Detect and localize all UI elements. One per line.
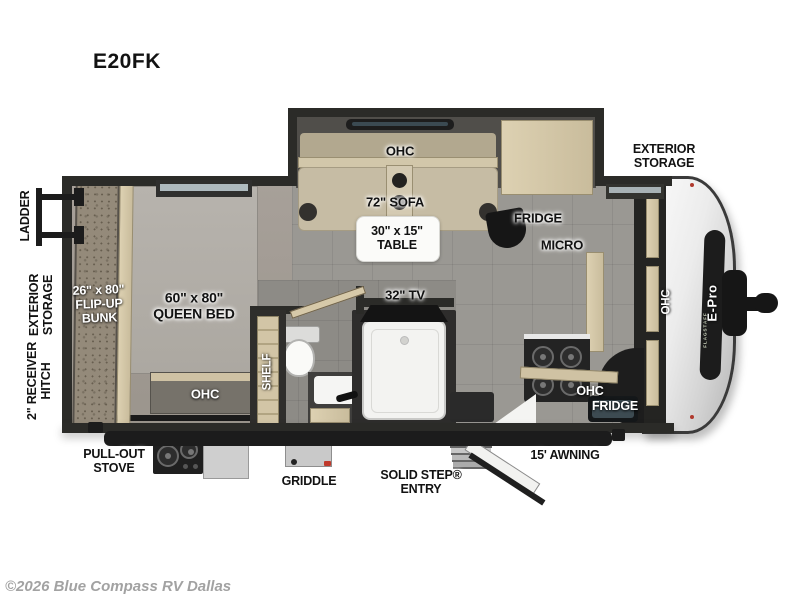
pullout-stove-tray <box>203 441 249 479</box>
stove-burner <box>532 346 554 368</box>
sofa-armrest <box>299 203 317 221</box>
tv <box>360 305 448 322</box>
hitch-coupler <box>754 293 778 313</box>
sofa-cupholder <box>392 173 407 188</box>
slideout-window-glass <box>352 122 448 126</box>
griddle-label: GRIDDLE <box>282 474 337 488</box>
cap-marker-dot <box>690 415 694 419</box>
micro-label: MICRO <box>541 239 583 254</box>
slideout-cabinet <box>501 120 593 195</box>
vanity-drawer <box>310 408 350 423</box>
bunk-label: 26" x 80" FLIP-UP BUNK <box>72 282 125 326</box>
stove-burner <box>560 346 582 368</box>
copyright-text: ©2026 Blue Compass RV Dallas <box>5 578 231 595</box>
awning-rail <box>104 431 612 446</box>
tv-label: 32" TV <box>385 289 425 304</box>
pull-out-stove-label: PULL-OUT STOVE <box>83 447 145 475</box>
bedroom-window-glass <box>160 184 248 191</box>
pullout-stove-knob <box>183 464 188 469</box>
slideout-wall-top <box>288 108 604 117</box>
shelf-label: SHELF <box>262 354 275 391</box>
slideout-window <box>346 119 454 130</box>
pullout-stove-burner <box>157 445 179 467</box>
kitchen-fridge-label: FRIDGE <box>592 399 638 413</box>
epro-logo-text: E-Pro <box>706 284 721 321</box>
solid-step-label: SOLID STEP® ENTRY <box>380 468 461 496</box>
griddle-knob <box>291 459 297 465</box>
receiver-hitch-label: 2" RECEIVER HITCH <box>25 342 53 420</box>
awning-left-nub <box>88 422 103 433</box>
bed-ohc-label: OHC <box>191 388 219 403</box>
bedroom-window <box>156 180 252 197</box>
exterior-storage-left-label: EXTERIOR STORAGE <box>27 274 55 336</box>
shower-tub <box>362 320 446 420</box>
fridge-label: FRIDGE <box>514 212 562 227</box>
epro-logo-subtext: FLAGSTAFF <box>702 312 707 347</box>
floorplan-page: E20FK OHC E-Pro FLAGSTAFF <box>0 0 800 600</box>
front-window-glass <box>609 187 661 193</box>
cap-storage-plank <box>646 340 659 406</box>
queen-bed-label: 60" x 80" QUEEN BED <box>153 290 234 321</box>
sofa-label: 72" SOFA <box>366 196 424 211</box>
slide-ohc-label: OHC <box>386 145 414 160</box>
front-window <box>606 184 664 199</box>
pullout-stove-knob <box>193 464 198 469</box>
table-label: 30" x 15" TABLE <box>371 224 423 252</box>
ladder-label: LADDER <box>18 191 32 242</box>
bed-ohc-wood-edge <box>151 373 257 381</box>
griddle-valve <box>324 461 331 466</box>
page-title: E20FK <box>93 50 161 74</box>
cap-storage-plank <box>646 266 659 332</box>
ladder-hook <box>74 188 84 206</box>
wall-left <box>62 176 72 433</box>
slideout-wall-left <box>288 108 297 186</box>
tub-drain <box>400 336 409 345</box>
cap-marker-dot <box>690 183 694 187</box>
exterior-storage-right-label: EXTERIOR STORAGE <box>633 142 695 170</box>
cap-ohc-label: OHC <box>661 290 674 315</box>
kitchen-ohc-label: OHC <box>576 384 603 398</box>
entry-mat <box>450 392 494 422</box>
awning-bracket <box>612 429 625 441</box>
awning-label: 15' AWNING <box>530 448 599 462</box>
cap-storage-plank <box>646 192 659 258</box>
ladder-hook <box>74 226 84 244</box>
queen-bed <box>124 186 258 374</box>
range-top-edge <box>524 334 590 339</box>
slideout-wall-right <box>595 108 604 186</box>
